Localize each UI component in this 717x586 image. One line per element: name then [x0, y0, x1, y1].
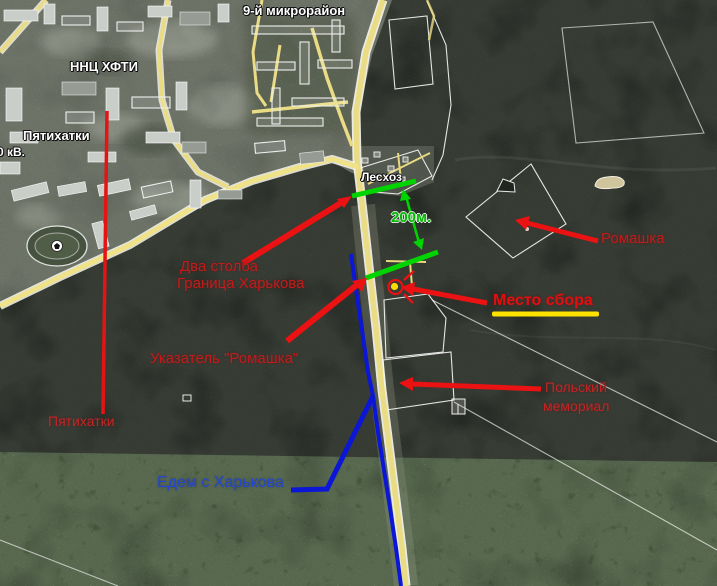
label-pyatikhatki-red: Пятихатки	[48, 414, 115, 429]
annotated-satellite-map: 9-й микрорайон ННЦ ХФТИ Пятихатки 0 кВ. …	[0, 0, 717, 586]
stadium	[27, 226, 87, 266]
label-border-kharkov: Граница Харькова	[177, 276, 304, 292]
bottom-forest-band	[0, 440, 717, 586]
label-9th-microdistrict: 9-й микрорайон	[243, 4, 345, 18]
soccer-ball-icon	[52, 241, 63, 252]
label-nnc-hfti: ННЦ ХФТИ	[70, 60, 138, 74]
label-polish-memorial-1: Польский	[545, 380, 607, 395]
meeting-point-dot	[391, 283, 398, 290]
label-two-pillars: Два столба	[180, 259, 258, 275]
label-leskhoz: Лесхоз	[361, 171, 402, 184]
label-from-kharkov: Едем с Харькова	[157, 475, 284, 492]
label-meeting-place: Место сбора	[493, 293, 593, 310]
yellow-highlight-underline	[492, 312, 599, 317]
label-distance-200m: 200м.	[391, 210, 431, 226]
label-kv: 0 кВ.	[0, 146, 25, 159]
label-polish-memorial-2: мемориал	[543, 399, 609, 414]
label-sign-romashka: Указатель "Ромашка"	[150, 351, 298, 367]
memorial-structure	[452, 399, 465, 414]
label-pyatikhatki-map: Пятихатки	[23, 129, 90, 143]
satellite-map-canvas	[0, 0, 717, 586]
label-romashka: Ромашка	[601, 231, 665, 247]
